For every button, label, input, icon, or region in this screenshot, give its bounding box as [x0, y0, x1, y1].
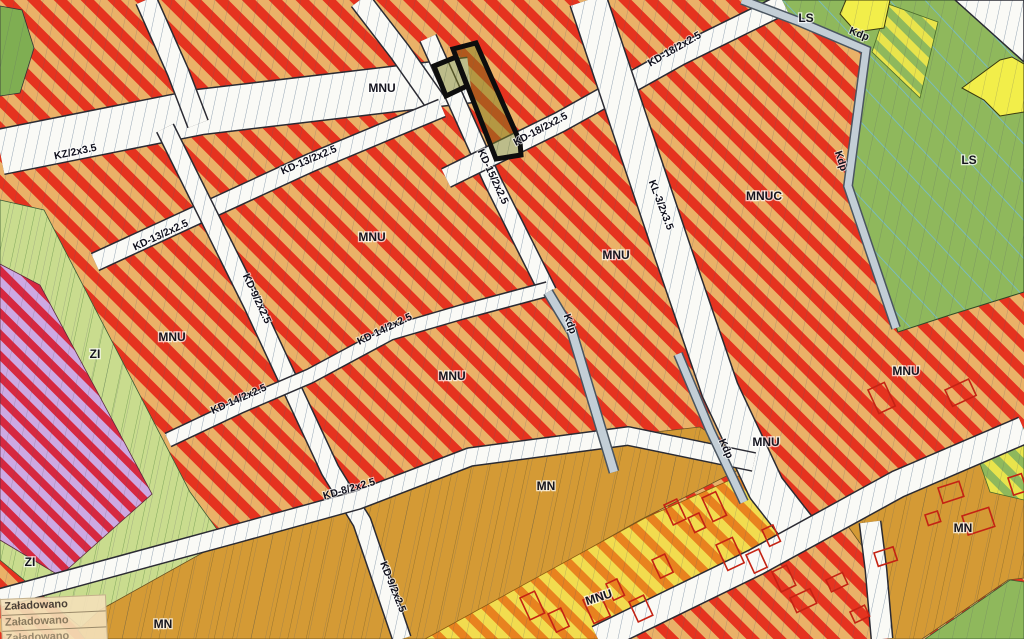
zoning-map-canvas[interactable]: MNUMNUMNUMNUMNUMNUCMNUMNUMNUMNMNMNLSLSZI…: [0, 0, 1024, 639]
zone-label: MN: [537, 479, 556, 493]
zone-label: MNU: [158, 330, 185, 344]
zone-label: MNU: [358, 230, 385, 244]
zone-label: LS: [798, 11, 813, 25]
zone-label: MN: [154, 617, 173, 631]
zone-label: MNU: [368, 81, 395, 95]
zone-label: MN: [954, 521, 973, 535]
zone-label: MNU: [602, 248, 629, 262]
road-southeast-branch: [870, 522, 882, 639]
status-panel: ZaładowanoZaładowanoZaładowano: [0, 594, 108, 639]
map-viewport[interactable]: MNUMNUMNUMNUMNUMNUCMNUMNUMNUMNMNMNLSLSZI…: [0, 0, 1024, 639]
zone-label: MNU: [752, 435, 779, 449]
zone-label: ZI: [90, 347, 101, 361]
zone-label: MNU: [892, 364, 919, 378]
zone-label: MNU: [438, 369, 465, 383]
zone-label: ZI: [25, 555, 36, 569]
zone-label: MNUC: [746, 189, 782, 203]
zone-label: LS: [961, 153, 976, 167]
